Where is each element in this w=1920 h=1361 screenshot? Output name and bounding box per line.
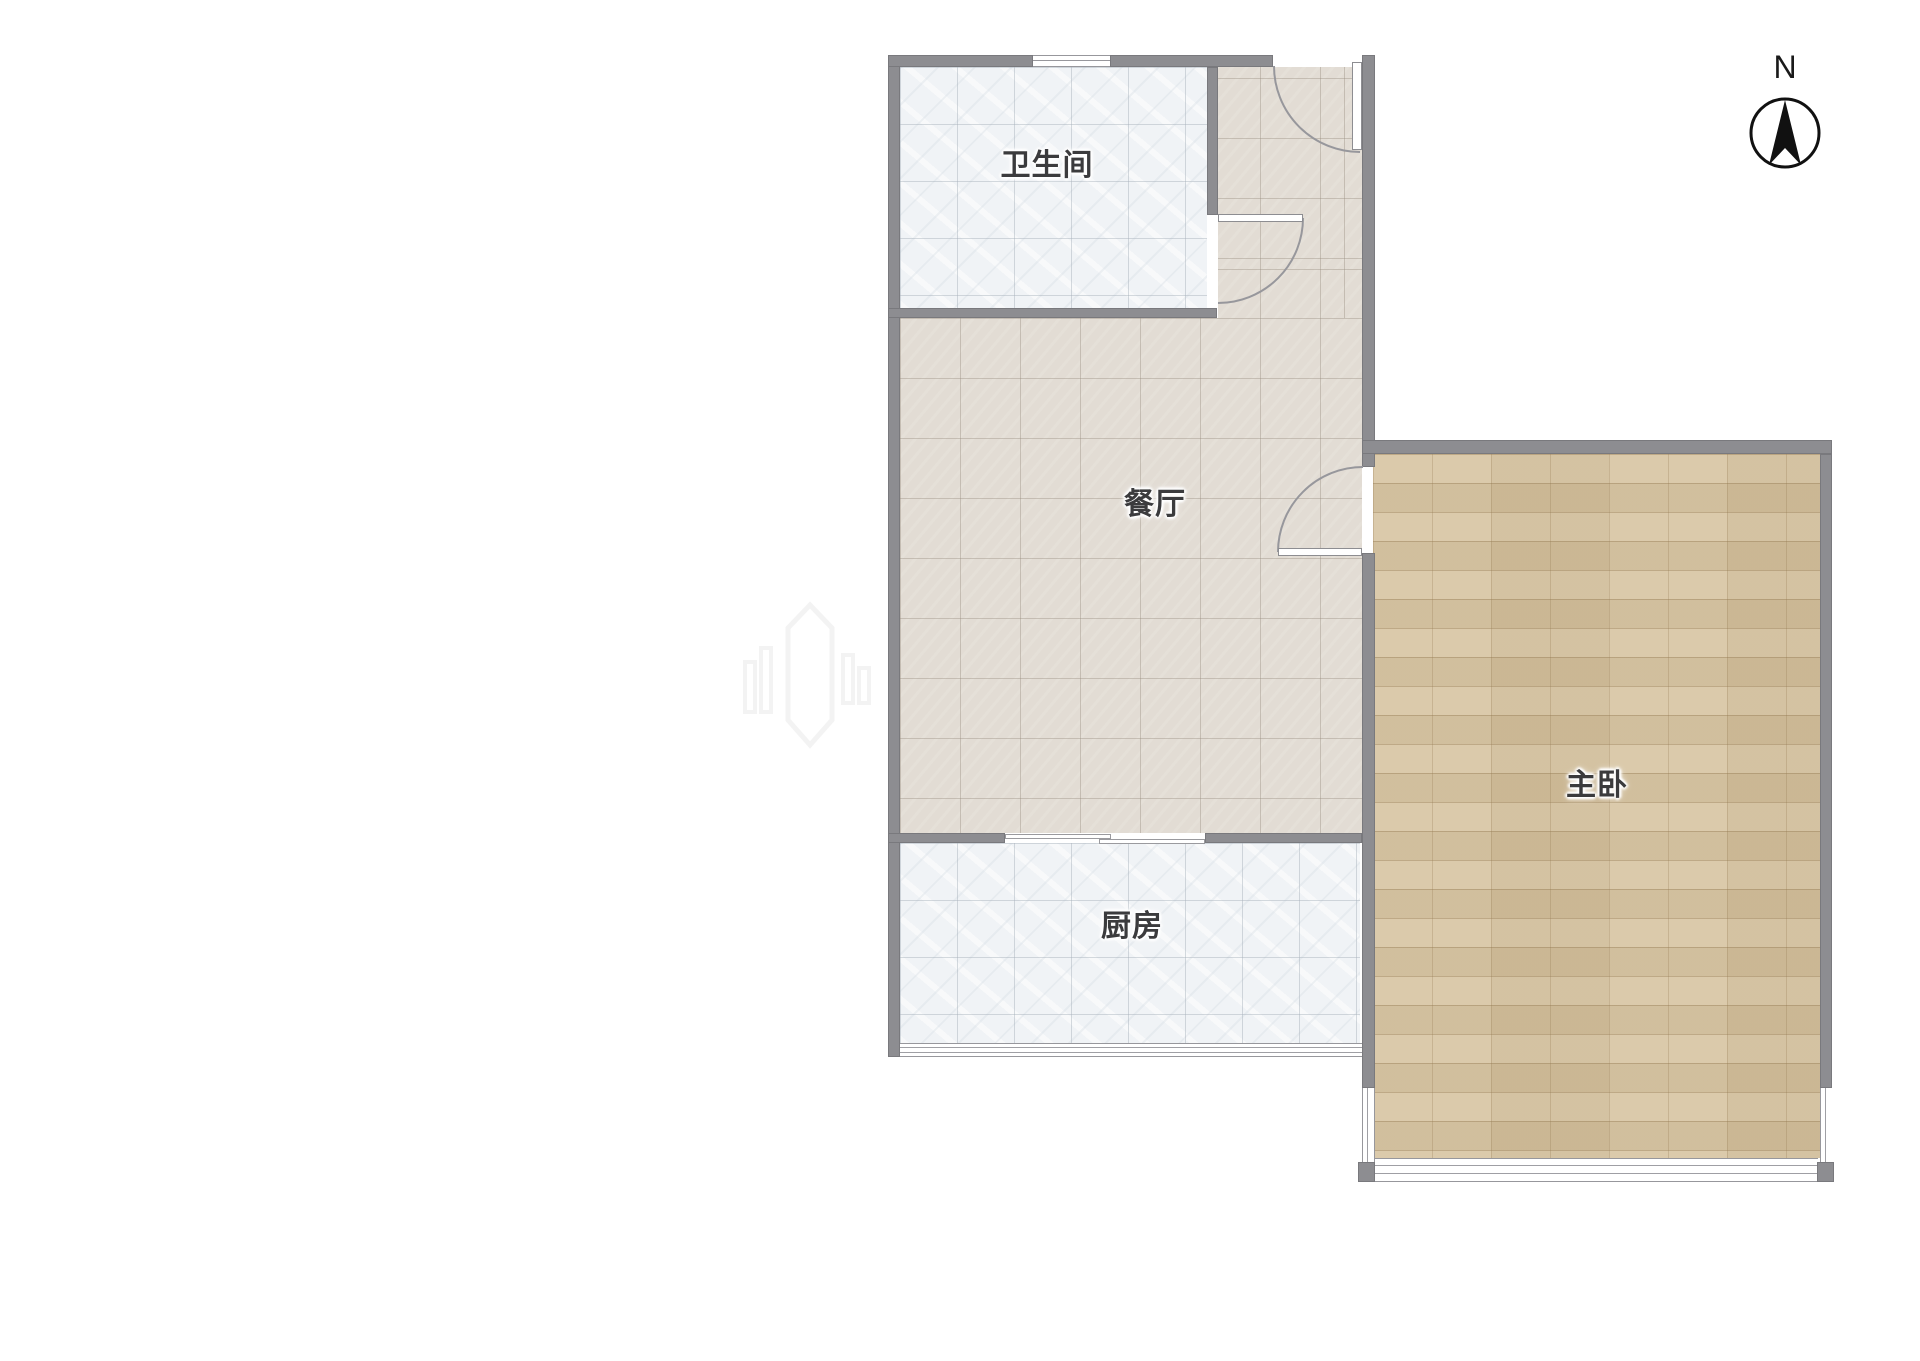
kitchen-label: 厨房 <box>1101 901 1163 945</box>
dining-floor <box>900 318 1362 833</box>
bathroom-floor <box>900 67 1207 308</box>
bedroom-right-wall <box>1820 454 1832 1088</box>
bedroom-bottom-window <box>1375 1158 1818 1182</box>
bedroom-top-wall <box>1362 440 1832 454</box>
entry-hall-floor <box>1218 67 1362 318</box>
master-bedroom-label: 主卧 <box>1566 760 1628 804</box>
window-corner-post-left <box>1358 1162 1375 1182</box>
window-corner-post-right <box>1817 1162 1834 1182</box>
kitchen-divider-wall-right <box>1205 833 1362 843</box>
bathroom-top-window <box>1033 55 1110 67</box>
compass-icon: N <box>1720 45 1850 185</box>
bathroom-right-wall <box>1207 67 1218 215</box>
bedroom-right-window <box>1820 1088 1832 1166</box>
bathroom-door-leaf <box>1218 214 1303 222</box>
right-wall-upper <box>1362 55 1375 467</box>
entry-door-leaf <box>1352 62 1362 150</box>
bedroom-floor <box>1373 454 1820 1158</box>
compass-north-letter: N <box>1773 49 1796 85</box>
floorplan-canvas: 卫生间 餐厅 厨房 主卧 N <box>0 0 1920 1361</box>
right-wall-mid <box>1362 553 1375 1088</box>
left-exterior-wall <box>888 55 900 1057</box>
watermark-logo <box>735 600 885 750</box>
dining-label: 餐厅 <box>1124 479 1186 523</box>
bathroom-bottom-wall <box>888 308 1217 318</box>
bedroom-left-window <box>1362 1088 1375 1166</box>
kitchen-sliding-door-panel-a <box>1005 834 1111 839</box>
kitchen-sliding-door-panel-b <box>1099 839 1205 844</box>
bedroom-door-leaf <box>1278 548 1362 556</box>
top-wall-left-segment <box>888 55 1033 67</box>
bathroom-label: 卫生间 <box>1001 140 1094 184</box>
top-wall-right-segment <box>1110 55 1273 67</box>
kitchen-bottom-window <box>900 1043 1362 1057</box>
kitchen-divider-wall-left <box>888 833 1005 843</box>
compass: N <box>1720 45 1850 185</box>
